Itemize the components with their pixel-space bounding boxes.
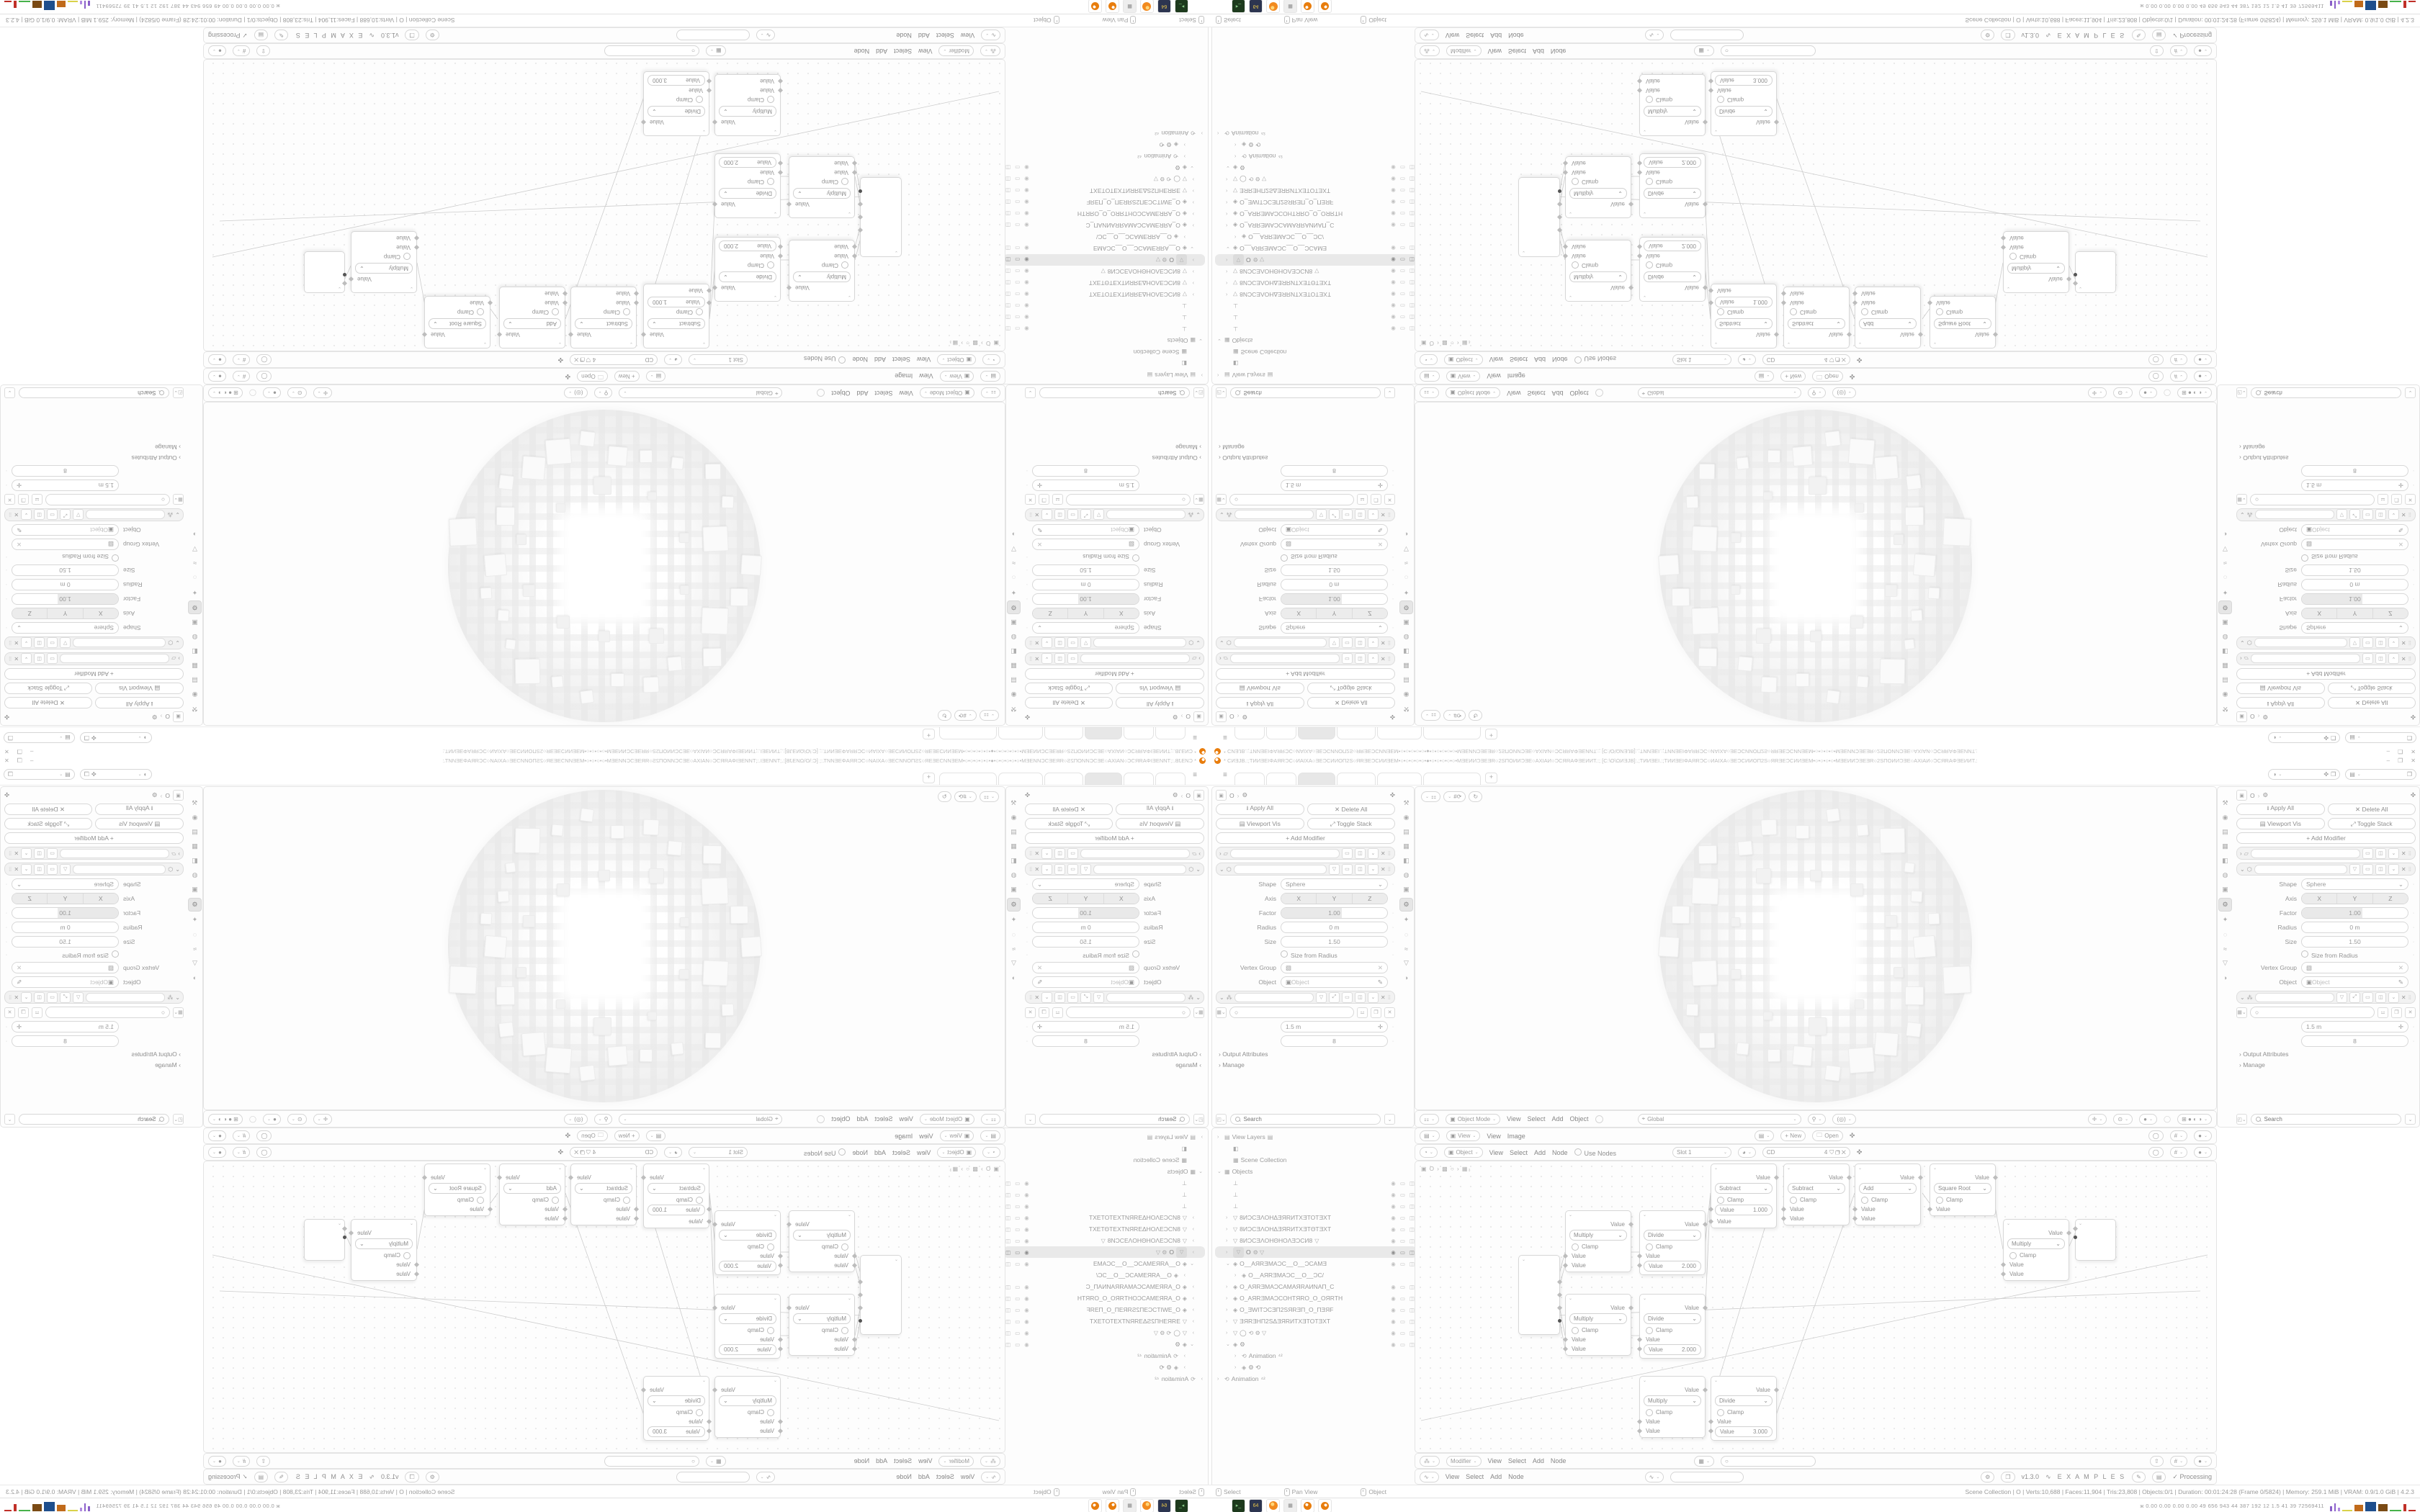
new-image-button[interactable]: + New [614,371,640,382]
clamp-row[interactable]: Clamp [789,1242,854,1251]
node-canvas[interactable]: ▣ O › ▩ ○ › ▦₃ ⌄⌄ValueMultiply⌄ClampValu… [1415,59,2217,351]
axis-z[interactable]: Z [2373,608,2408,618]
add-modifier-button[interactable]: + Add Modifier [4,832,184,844]
visibility-icon[interactable]: ▭ [1400,269,1405,275]
editor-type-button[interactable]: ⚏⌄ [981,1114,1000,1125]
input-socket-black[interactable] [343,1236,346,1239]
axis-y[interactable]: Y [1317,608,1352,618]
outliner-row[interactable]: ›▽◯ ⟲ ⚙ ▽◉▭◫ [1003,174,1205,185]
expand-caret[interactable]: ⌄ [1219,512,1224,518]
visibility-icon[interactable]: ▭ [1015,1307,1020,1313]
menu-node[interactable]: Node [854,1457,870,1464]
outliner-row[interactable]: ◧ [1215,1143,1417,1154]
pin-icon[interactable]: ✜ [2323,734,2329,741]
menu-select[interactable]: Select [1528,1115,1546,1122]
node-multiply[interactable]: ⌄ValueMultiply⌄ClampValueValue [789,156,855,218]
delete-modifier-icon[interactable]: ✕ [1381,512,1386,518]
modifier-toggle-icon[interactable]: ▭ [1342,864,1353,875]
viewport-3d[interactable]: ⌄⚏ ⌄#⟳ ↻ [203,786,1005,1110]
modifier-toggle-icon[interactable]: ⌄ [2388,992,2399,1003]
size-field[interactable]: 1.50 [1032,936,1139,948]
firefox-icon[interactable] [1266,1499,1280,1512]
visibility-icon[interactable]: ◫ [1410,1307,1415,1313]
output-attributes-section[interactable]: › Output Attributes [1025,454,1201,462]
menu-select[interactable]: Select [1508,48,1526,55]
image-datablock-icon[interactable]: ▤⌄ [646,1130,666,1141]
view-layer-tab[interactable]: ▦ [1008,660,1020,672]
editor-type-button[interactable]: ⚏⌄ [1420,1114,1439,1125]
output-socket-black[interactable] [859,1319,862,1323]
axis-x[interactable]: X [1281,894,1317,904]
radius-field[interactable]: 0 m [1281,922,1388,933]
visibility-icon[interactable]: ◫ [1005,257,1010,264]
node-group-name-field[interactable]: ○ [45,494,170,505]
drag-handle[interactable]: ⣿ [1388,513,1391,518]
axis-x[interactable]: X [2302,608,2337,618]
modifier-toggle-icon[interactable]: ▽ [1329,638,1340,649]
physics-tab[interactable]: ◌ [2219,928,2231,940]
physics-tab[interactable]: ◌ [1400,572,1412,584]
addon-copy-icon[interactable]: ❐ [2001,30,2015,41]
operation-dropdown[interactable]: Subtract⌄ [575,1183,632,1194]
visibility-icon[interactable]: ▭ [1400,1238,1405,1244]
visibility-icon[interactable]: ▭ [1400,292,1405,298]
editor-type-button[interactable]: ▤⌄ [980,371,1000,382]
use-nodes-checkbox[interactable]: Use Nodes [804,356,846,364]
modifier-toggle-icon[interactable]: ⤢ [2349,510,2360,521]
operation-dropdown[interactable]: Add⌄ [503,318,561,329]
modifier-toggle-icon[interactable]: ⌄ [1041,848,1052,859]
factor-slider[interactable]: 1.00 [1032,907,1139,919]
operation-dropdown[interactable]: Multiply⌄ [793,1230,851,1241]
floppy-64-icon[interactable]: 64 [1249,0,1263,14]
modifier-name-field[interactable] [86,510,165,520]
menu-object[interactable]: Object [1570,1115,1589,1122]
workspace-tab-6[interactable] [1423,727,1481,739]
maximize-button[interactable]: ❐ [17,748,22,755]
expand-caret[interactable]: ⌄ [175,866,180,873]
visibility-icon[interactable]: ▭ [1015,1215,1020,1221]
menu-select[interactable]: Select [894,1457,912,1464]
outliner-row[interactable]: ›◈O__AЯRƎMAƆC__O__ƆC/ [1003,231,1205,243]
axis-y[interactable]: Y [2337,894,2372,904]
modifier-toggle-icon[interactable]: ▽ [73,992,84,1003]
modifier-toggle-icon[interactable]: ⤢ [1329,510,1340,521]
outliner-row[interactable]: ▦Scene Collection [1003,346,1205,358]
tool-tab[interactable]: ⚒ [2219,797,2231,809]
visibility-icon[interactable]: ◫ [1410,211,1415,217]
manage-section[interactable]: › Manage [1219,444,1395,451]
modifier-slot-1[interactable]: ›▱▭◫⌄✕⣿ [4,847,184,860]
operation-dropdown[interactable]: Multiply⌄ [793,271,851,282]
constraints-tab[interactable]: ≈ [1008,557,1020,570]
shape-dropdown[interactable]: Sphere⌄ [2301,878,2408,890]
node-square-root[interactable]: ⌄ValueSquare Root⌄ClampValue [424,1164,490,1216]
firefox-icon[interactable] [1140,1499,1154,1512]
visibility-icon[interactable]: ▭ [1400,199,1405,206]
open-image-button[interactable]: 🗀 Open [577,371,608,382]
clamp-row[interactable]: Clamp [789,177,854,186]
visibility-icon[interactable]: ▭ [1015,1203,1020,1210]
node-value-field[interactable]: Value2.000 [719,240,776,251]
pin-icon[interactable]: ✜ [1025,713,1030,721]
render-tab[interactable]: ◉ [1400,688,1412,701]
visibility-icon[interactable]: ◫ [1410,257,1415,264]
vertex-group-field[interactable]: ▧✕ [2301,539,2408,550]
outliner-row[interactable]: ⊥◉▭◫ [1215,1189,1417,1200]
toggle-stack-button[interactable]: ⤢ Toggle Stack [4,683,93,694]
node-value-field[interactable]: Value2.000 [1644,157,1701,168]
visibility-icon[interactable]: ◉ [1024,1341,1029,1348]
clamp-row[interactable]: Clamp [1640,1326,1705,1335]
output-tab[interactable]: ▤ [189,826,201,838]
minimize-button[interactable]: – [2387,757,2390,764]
fake-user-icon[interactable]: ⚍ [32,1007,42,1018]
visibility-icon[interactable]: ▭ [1015,1330,1020,1336]
visibility-icon[interactable]: ▭ [1400,1295,1405,1302]
viewport-overlay-widget3[interactable]: ↻ [938,710,951,721]
shape-dropdown[interactable]: Sphere⌄ [1032,622,1139,634]
size-field[interactable]: 1.50 [12,936,119,948]
outliner-row[interactable]: ⊥◉▭◫ [1003,312,1205,323]
menu-view[interactable]: View [1446,1473,1459,1480]
editor-type-button[interactable]: ∿⌄ [1420,1472,1439,1482]
outliner-row[interactable]: ›⟲Animation ⁴² [1215,1350,1417,1362]
workspace-tab-2[interactable] [1124,727,1154,739]
search-input[interactable] [1044,1115,1178,1123]
operation-dropdown[interactable]: Add⌄ [1859,318,1917,329]
operation-dropdown[interactable]: Multiply⌄ [2007,1238,2065,1249]
menu-view[interactable]: View [1488,1457,1502,1464]
drag-handle[interactable]: ⣿ [2408,867,2412,872]
workspace-tab-1[interactable] [1155,727,1186,739]
nodes-input-value-1[interactable]: 1.5 m✛ [1032,1021,1139,1032]
workspace-tab-2[interactable] [1124,773,1154,785]
operation-dropdown[interactable]: Divide⌄ [647,1395,705,1406]
object-tab[interactable]: ▣ [189,616,201,629]
node-square-root[interactable]: ⌄ValueSquare Root⌄ClampValue [1930,296,1996,348]
snapping-pill[interactable]: ⚲⌄ [594,388,613,399]
shading-toggle[interactable]: ●⌄ [2194,1456,2212,1467]
editor-type-button[interactable]: ◔⌄ [982,1147,1000,1158]
visibility-icon[interactable]: ◫ [1410,1249,1415,1256]
node-blank-out[interactable]: ⌄ [304,1219,345,1261]
outliner-row[interactable]: ›▽8ИƆCƎΛOHΘHOΛƎƆCИ8 ▽◉▭◫ [1003,266,1205,277]
clamp-row[interactable]: Clamp [644,307,709,317]
addon-settings-icon[interactable]: ⚙ [426,1472,439,1482]
visibility-icon[interactable]: ◫ [1005,1238,1010,1244]
node-divide[interactable]: ⌄ValueDivide⌄ClampValueValue2.000 [714,237,781,302]
modifier-toggle-icon[interactable]: ▭ [1342,848,1353,859]
clamp-row[interactable]: Clamp [789,1326,854,1335]
unlink-icon[interactable]: ✕ [4,495,15,505]
visibility-icon[interactable]: ◉ [1391,1341,1396,1348]
outliner-row[interactable]: ⊥◉▭◫ [1215,1177,1417,1189]
scene-selector[interactable]: ◑⌄ ✜ ❐ [2268,769,2340,780]
modifier-toggle-icon[interactable]: ◫ [2375,654,2386,665]
nodes-input-value-1[interactable]: 1.5 m✛ [2301,1021,2408,1032]
node-group-field[interactable]: ○ [1721,1456,1816,1467]
nodes-input-value-2[interactable]: 8 [12,465,119,477]
visibility-icon[interactable]: ◉ [1391,222,1396,229]
modifier-toggle-icon[interactable]: ◫ [34,848,45,859]
scene-tab[interactable]: ◧ [1400,645,1412,657]
visibility-icon[interactable]: ◉ [1024,280,1029,287]
visibility-icon[interactable]: ◉ [1391,1238,1396,1244]
nodes-input-value-1[interactable]: 1.5 m✛ [1281,480,1388,491]
visibility-icon[interactable]: ◫ [1005,199,1010,206]
visibility-icon[interactable]: ◫ [1410,1238,1415,1244]
expand-caret[interactable]: ⌄ [175,512,180,518]
output-tab[interactable]: ▤ [1008,674,1020,686]
modifier-toggle-icon[interactable]: ▽ [2336,992,2347,1003]
delete-modifier-icon[interactable]: ✕ [14,994,19,1001]
operation-dropdown[interactable]: Divide⌄ [647,106,705,117]
outliner-row[interactable]: ⌄◈O__AЯRƎMAƆC__O__ƆCAMƎ◉▭◫ [1003,1258,1205,1269]
pin-icon[interactable]: ✜ [1857,356,1863,364]
modifier-toggle-icon[interactable]: ▽ [1316,510,1327,521]
visibility-icon[interactable]: ▭ [1015,211,1020,217]
shading-toggle[interactable]: ●⌄ [2194,46,2212,57]
node-subtract[interactable]: ⌄ValueSubtract⌄ClampValueValue [1783,287,1850,348]
modifier-name-field[interactable] [73,639,166,648]
node-value-field[interactable]: Value2.000 [1644,1261,1701,1272]
factor-slider[interactable]: 1.00 [1032,593,1139,605]
node-blank-in[interactable]: ⌄ [1518,177,1560,257]
pin-icon[interactable]: ✜ [558,356,564,364]
visibility-icon[interactable]: ◫ [1410,1284,1415,1290]
modifier-toggle-icon[interactable]: ◫ [34,864,45,875]
node-blank-in[interactable]: ⌄ [860,1255,902,1335]
add-modifier-button[interactable]: + Add Modifier [1216,668,1395,680]
visibility-icon[interactable]: ◫ [1410,303,1415,310]
pin-icon[interactable]: ✜ [91,734,97,741]
modifier-name-field[interactable] [2254,865,2347,874]
menu-image[interactable]: Image [895,1133,913,1140]
constraints-tab[interactable]: ≈ [2219,557,2231,570]
material-name-field[interactable]: CD4 ⛉ ❐ ✕ [570,354,658,365]
visibility-icon[interactable]: ◫ [1410,292,1415,298]
workspace-tab-3[interactable] [1298,773,1335,785]
viewport-overlay-widget[interactable]: ⌄⚏ [1421,791,1440,802]
modifier-toggle-icon[interactable]: ⌄ [21,864,32,875]
object-tab[interactable]: ▣ [1008,883,1020,896]
visibility-icon[interactable]: ◉ [1391,1203,1396,1210]
modifier-toggle-icon[interactable]: ▭ [1067,848,1078,859]
drag-handle[interactable]: ⣿ [1388,867,1391,872]
menu-select[interactable]: Select [892,356,910,364]
workspace-tab-3[interactable] [1298,727,1335,739]
clamp-row[interactable]: Clamp [2004,252,2069,261]
menu-view[interactable]: View [899,390,913,397]
copy-icon[interactable]: ❐ [8,771,13,778]
shading-mode-pills[interactable]: ⊞ ● ◐ ◑⌄ [208,1114,243,1125]
outliner-row[interactable]: ›▽8ИƆCƎΛOHΘHOΛƎƆCИ8 ▽◉▭◫ [1215,266,1417,277]
gizmo-toggle[interactable]: ✛⌄ [2088,1114,2107,1125]
firefox-icon[interactable] [1140,0,1154,14]
node-group-type-icon[interactable]: ▦⌄ [1216,1007,1227,1018]
xray-toggle[interactable]: ●⌄ [2139,1114,2157,1125]
visibility-icon[interactable]: ◫ [1005,315,1010,321]
clamp-row[interactable]: Clamp [1711,95,1776,104]
visibility-icon[interactable]: ◫ [1005,1261,1010,1267]
viewport-3d[interactable]: ⌄⚏ ⌄#⟳ ↻ [1415,402,2217,726]
menu-add[interactable]: Add [874,1149,886,1156]
add-modifier-button[interactable]: + Add Modifier [1216,832,1395,844]
vertex-group-field[interactable]: ▧✕ [12,962,119,973]
pin-icon[interactable]: ✜ [2411,713,2416,721]
editor-type-button[interactable]: ∿⌄ [981,1472,1000,1482]
visibility-icon[interactable]: ◫ [1005,1215,1010,1221]
node-divide[interactable]: ⌄ValueDivide⌄ClampValueValue2.000 [1639,153,1706,218]
scene-selector[interactable]: ◑⌄ ✜ ❐ [80,769,152,780]
visibility-icon[interactable]: ◫ [1410,1203,1415,1210]
axis-y[interactable]: Y [2337,608,2372,618]
axis-segmented[interactable]: XYZ [1281,893,1388,904]
operation-dropdown[interactable]: Multiply⌄ [1569,1230,1627,1241]
addon-settings-icon[interactable]: ⚙ [426,30,439,41]
output-tab[interactable]: ▤ [1400,674,1412,686]
pin-icon[interactable]: ✜ [1850,372,1855,380]
visibility-icon[interactable]: ▭ [1015,326,1020,333]
world-tab[interactable]: ◍ [2219,631,2231,643]
delete-modifier-icon[interactable]: ✕ [2401,656,2406,662]
modifier-toggle-icon[interactable]: ⌄ [1041,654,1052,665]
menu-image[interactable]: Image [1507,373,1525,380]
axis-x[interactable]: X [1281,608,1317,618]
minimize-button[interactable]: – [2387,748,2390,755]
visibility-icon[interactable]: ▭ [1400,257,1405,264]
copy-icon[interactable]: ❐ [18,1007,29,1018]
node-group-name-field[interactable]: ○ [1229,1007,1354,1018]
render-tab[interactable]: ◉ [1008,811,1020,824]
output-tab[interactable]: ▤ [2219,826,2231,838]
visibility-icon[interactable]: ◉ [1024,211,1029,217]
manage-section[interactable]: › Manage [2239,1061,2416,1068]
node-subtract[interactable]: ⌄ValueSubtract⌄ClampValue1.000Value [643,284,709,348]
node-value-field[interactable]: Value2.000 [719,157,776,168]
editor-type-button[interactable]: ⚏⌄ [1420,388,1439,399]
visibility-icon[interactable]: ◫ [1005,1307,1010,1313]
node-value-field[interactable]: Value3.000 [1715,75,1773,86]
modifier-toggle-icon[interactable]: ▽ [1080,638,1091,649]
node-multiply[interactable]: ⌄ValueMultiply⌄ClampValueValue [351,231,417,293]
outliner-row[interactable]: ›◈O_AЯRƎMAƆCAMAЯRAИNAП_C◉▭◫ [1003,1281,1205,1292]
search-input[interactable] [1242,1115,1376,1123]
manage-section[interactable]: › Manage [1025,444,1201,451]
drag-handle[interactable]: ⣿ [1388,851,1391,856]
delete-modifier-icon[interactable]: ✕ [1034,866,1039,873]
world-tab[interactable]: ◍ [2219,869,2231,881]
size-from-radius-checkbox[interactable]: Size from Radius [1281,553,1337,562]
outliner-row[interactable]: ⊥◉▭◫ [1003,323,1205,335]
modifier-toggle-icon[interactable]: ⌄ [21,992,32,1003]
modifier-toggle-icon[interactable]: ▽ [1093,992,1104,1003]
drag-handle[interactable]: ⣿ [8,995,12,1000]
modifier-toggle-icon[interactable]: ⤢ [60,510,71,521]
expand-caret[interactable]: ⌄ [2240,994,2245,1001]
xray-toggle[interactable]: ●⌄ [2139,388,2157,399]
modifier-toggle-icon[interactable]: ◫ [1054,638,1065,649]
menu-view[interactable]: View [917,356,931,364]
modifier-toggle-icon[interactable]: ◫ [34,510,45,521]
visibility-icon[interactable]: ◫ [1005,269,1010,275]
window-titlebar[interactable]: * CИƎJB.:;TИИƎEIΦAЯRƆC○ИAIXA○ƎEƆCИИOП2S○… [1210,756,2420,765]
outliner-row[interactable]: ›▽8ИƆCƎΛOHΔƎЯRИTXƎTOTƎXT◉▭◫ [1003,1212,1205,1223]
copy-icon[interactable]: ❐ [2407,734,2412,741]
editor-type-button[interactable]: ⁂⌄ [1420,1456,1440,1467]
operation-dropdown[interactable]: Square Root⌄ [429,1183,486,1194]
node-group-name-field[interactable]: ○ [2250,494,2375,505]
visibility-icon[interactable]: ◫ [1005,211,1010,217]
visibility-icon[interactable]: ▭ [1400,1261,1405,1267]
visibility-icon[interactable]: ▭ [1400,165,1405,171]
delete-modifier-icon[interactable]: ✕ [2401,994,2406,1001]
node-add[interactable]: ⌄ValueAdd⌄ClampValueValue [1855,287,1921,348]
modifier-toggle-icon[interactable]: ⌄ [21,848,32,859]
clamp-row[interactable]: Clamp [1640,1408,1705,1417]
properties-search[interactable] [19,1114,169,1125]
back-arrow[interactable]: ⇧ [256,46,270,57]
modifier-slot-3[interactable]: ⌄⁂▽⤢▭◫⌄✕⣿ [2236,508,2416,521]
material-tab[interactable]: ◑ [1008,528,1020,541]
outliner-row[interactable]: ⌄◈⚙◉▭◫ [1003,162,1205,174]
outliner-row[interactable]: ›▽8ИƆCƎΛOHΔƎЯRИTXƎTOTƎXT◉▭◫ [1215,289,1417,300]
modifier-toggle-icon[interactable]: ▭ [1342,638,1353,649]
radius-field[interactable]: 0 m [2301,922,2408,933]
modifier-toggle-icon[interactable]: ⌄ [1368,510,1379,521]
modifier-toggle-icon[interactable]: ◫ [1355,992,1366,1003]
viewport-vis-button[interactable]: ▤ Viewport Vis [96,818,184,829]
visibility-icon[interactable]: ◉ [1391,165,1396,171]
visibility-icon[interactable]: ◉ [1024,326,1029,333]
visibility-icon[interactable]: ▭ [1015,315,1020,321]
pin-icon[interactable]: ✜ [4,713,9,721]
size-from-radius-checkbox[interactable]: Size from Radius [1083,553,1139,562]
visibility-icon[interactable]: ◉ [1024,1330,1029,1336]
shading-toggle[interactable]: ●⌄ [208,46,226,57]
view-layer-tab[interactable]: ▦ [1400,840,1412,852]
operation-dropdown[interactable]: Square Root⌄ [429,318,486,329]
window-titlebar[interactable]: * CИƎJB.:;TИИƎEIΦAЯRƆC○ИAIXA○ƎEƆCИИOП2S○… [0,747,1210,756]
search-input[interactable] [1044,389,1178,397]
delete-modifier-icon[interactable]: ✕ [14,512,19,518]
menu-node[interactable]: Node [1552,1149,1568,1156]
menu-add[interactable]: Add [856,390,868,397]
node-subtract[interactable]: ⌄ValueSubtract⌄ClampValueValue [570,287,637,348]
visibility-icon[interactable]: ◫ [1005,303,1010,310]
menu-view[interactable]: View [1487,373,1500,380]
viewport-overlay-widget2[interactable]: ⌄#⟳ [1443,791,1466,802]
modifier-toggle-icon[interactable]: ▽ [1093,510,1104,521]
properties-search[interactable] [1039,1114,1190,1125]
visibility-icon[interactable]: ◫ [1005,1249,1010,1256]
visibility-icon[interactable]: ◉ [1391,1226,1396,1233]
unlink-icon[interactable]: ✕ [2405,1007,2416,1018]
nodes-input-value-2[interactable]: 8 [1281,465,1388,477]
node-value-field[interactable]: Value3.000 [647,75,705,86]
visibility-icon[interactable]: ◫ [1005,165,1010,171]
node-square-root[interactable]: ⌄ValueSquare Root⌄ClampValue [1930,1164,1996,1216]
nodes-input-value-1[interactable]: 1.5 m✛ [12,480,119,491]
fake-user-icon[interactable]: ⚍ [1052,495,1063,505]
modifier-toggle-icon[interactable]: ⤢ [1329,992,1340,1003]
manage-section[interactable]: › Manage [4,444,181,451]
viewport-overlay-widget2[interactable]: ⌄#⟳ [954,791,977,802]
clamp-row[interactable]: Clamp [351,252,416,261]
search-input[interactable] [2263,1115,2396,1123]
modifier-toggle-icon[interactable]: ▽ [2349,864,2360,875]
